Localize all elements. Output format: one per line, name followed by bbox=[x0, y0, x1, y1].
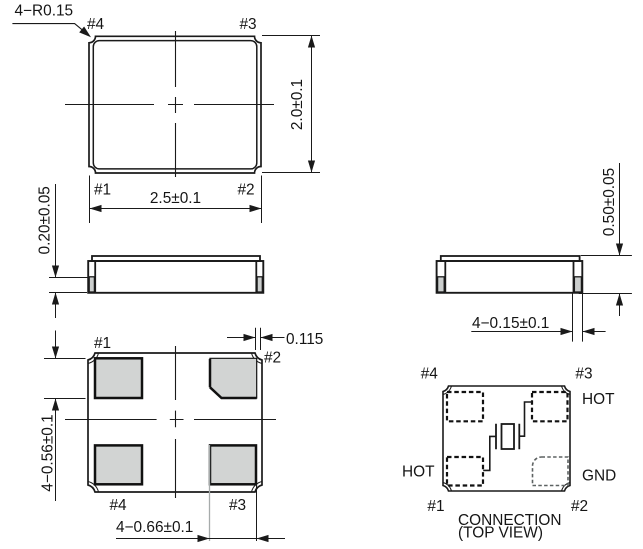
svg-text:0.50±0.05: 0.50±0.05 bbox=[601, 168, 618, 236]
svg-text:4−0.66±0.1: 4−0.66±0.1 bbox=[116, 519, 193, 536]
svg-text:#1: #1 bbox=[427, 498, 444, 515]
svg-text:#1: #1 bbox=[94, 182, 111, 199]
svg-text:#3: #3 bbox=[575, 366, 592, 383]
svg-text:2.0±0.1: 2.0±0.1 bbox=[289, 79, 306, 130]
svg-text:#3: #3 bbox=[229, 497, 246, 514]
svg-text:4−0.56±0.1: 4−0.56±0.1 bbox=[40, 414, 57, 491]
svg-text:2.5±0.1: 2.5±0.1 bbox=[150, 190, 201, 207]
svg-text:(TOP VIEW): (TOP VIEW) bbox=[458, 525, 543, 542]
svg-text:#3: #3 bbox=[240, 16, 257, 33]
svg-text:HOT: HOT bbox=[582, 391, 615, 408]
svg-text:#1: #1 bbox=[94, 335, 111, 352]
svg-text:0.20±0.05: 0.20±0.05 bbox=[37, 186, 54, 254]
svg-text:HOT: HOT bbox=[402, 464, 435, 481]
svg-text:4−R0.15: 4−R0.15 bbox=[15, 3, 74, 20]
svg-text:#2: #2 bbox=[238, 182, 255, 199]
svg-text:#4: #4 bbox=[87, 16, 105, 33]
svg-text:#4: #4 bbox=[421, 366, 439, 383]
svg-text:GND: GND bbox=[582, 468, 616, 485]
svg-text:#4: #4 bbox=[110, 497, 128, 514]
svg-text:#2: #2 bbox=[571, 498, 588, 515]
svg-text:4−0.15±0.1: 4−0.15±0.1 bbox=[472, 315, 549, 332]
svg-text:#2: #2 bbox=[264, 350, 281, 367]
svg-text:0.115: 0.115 bbox=[286, 331, 323, 348]
